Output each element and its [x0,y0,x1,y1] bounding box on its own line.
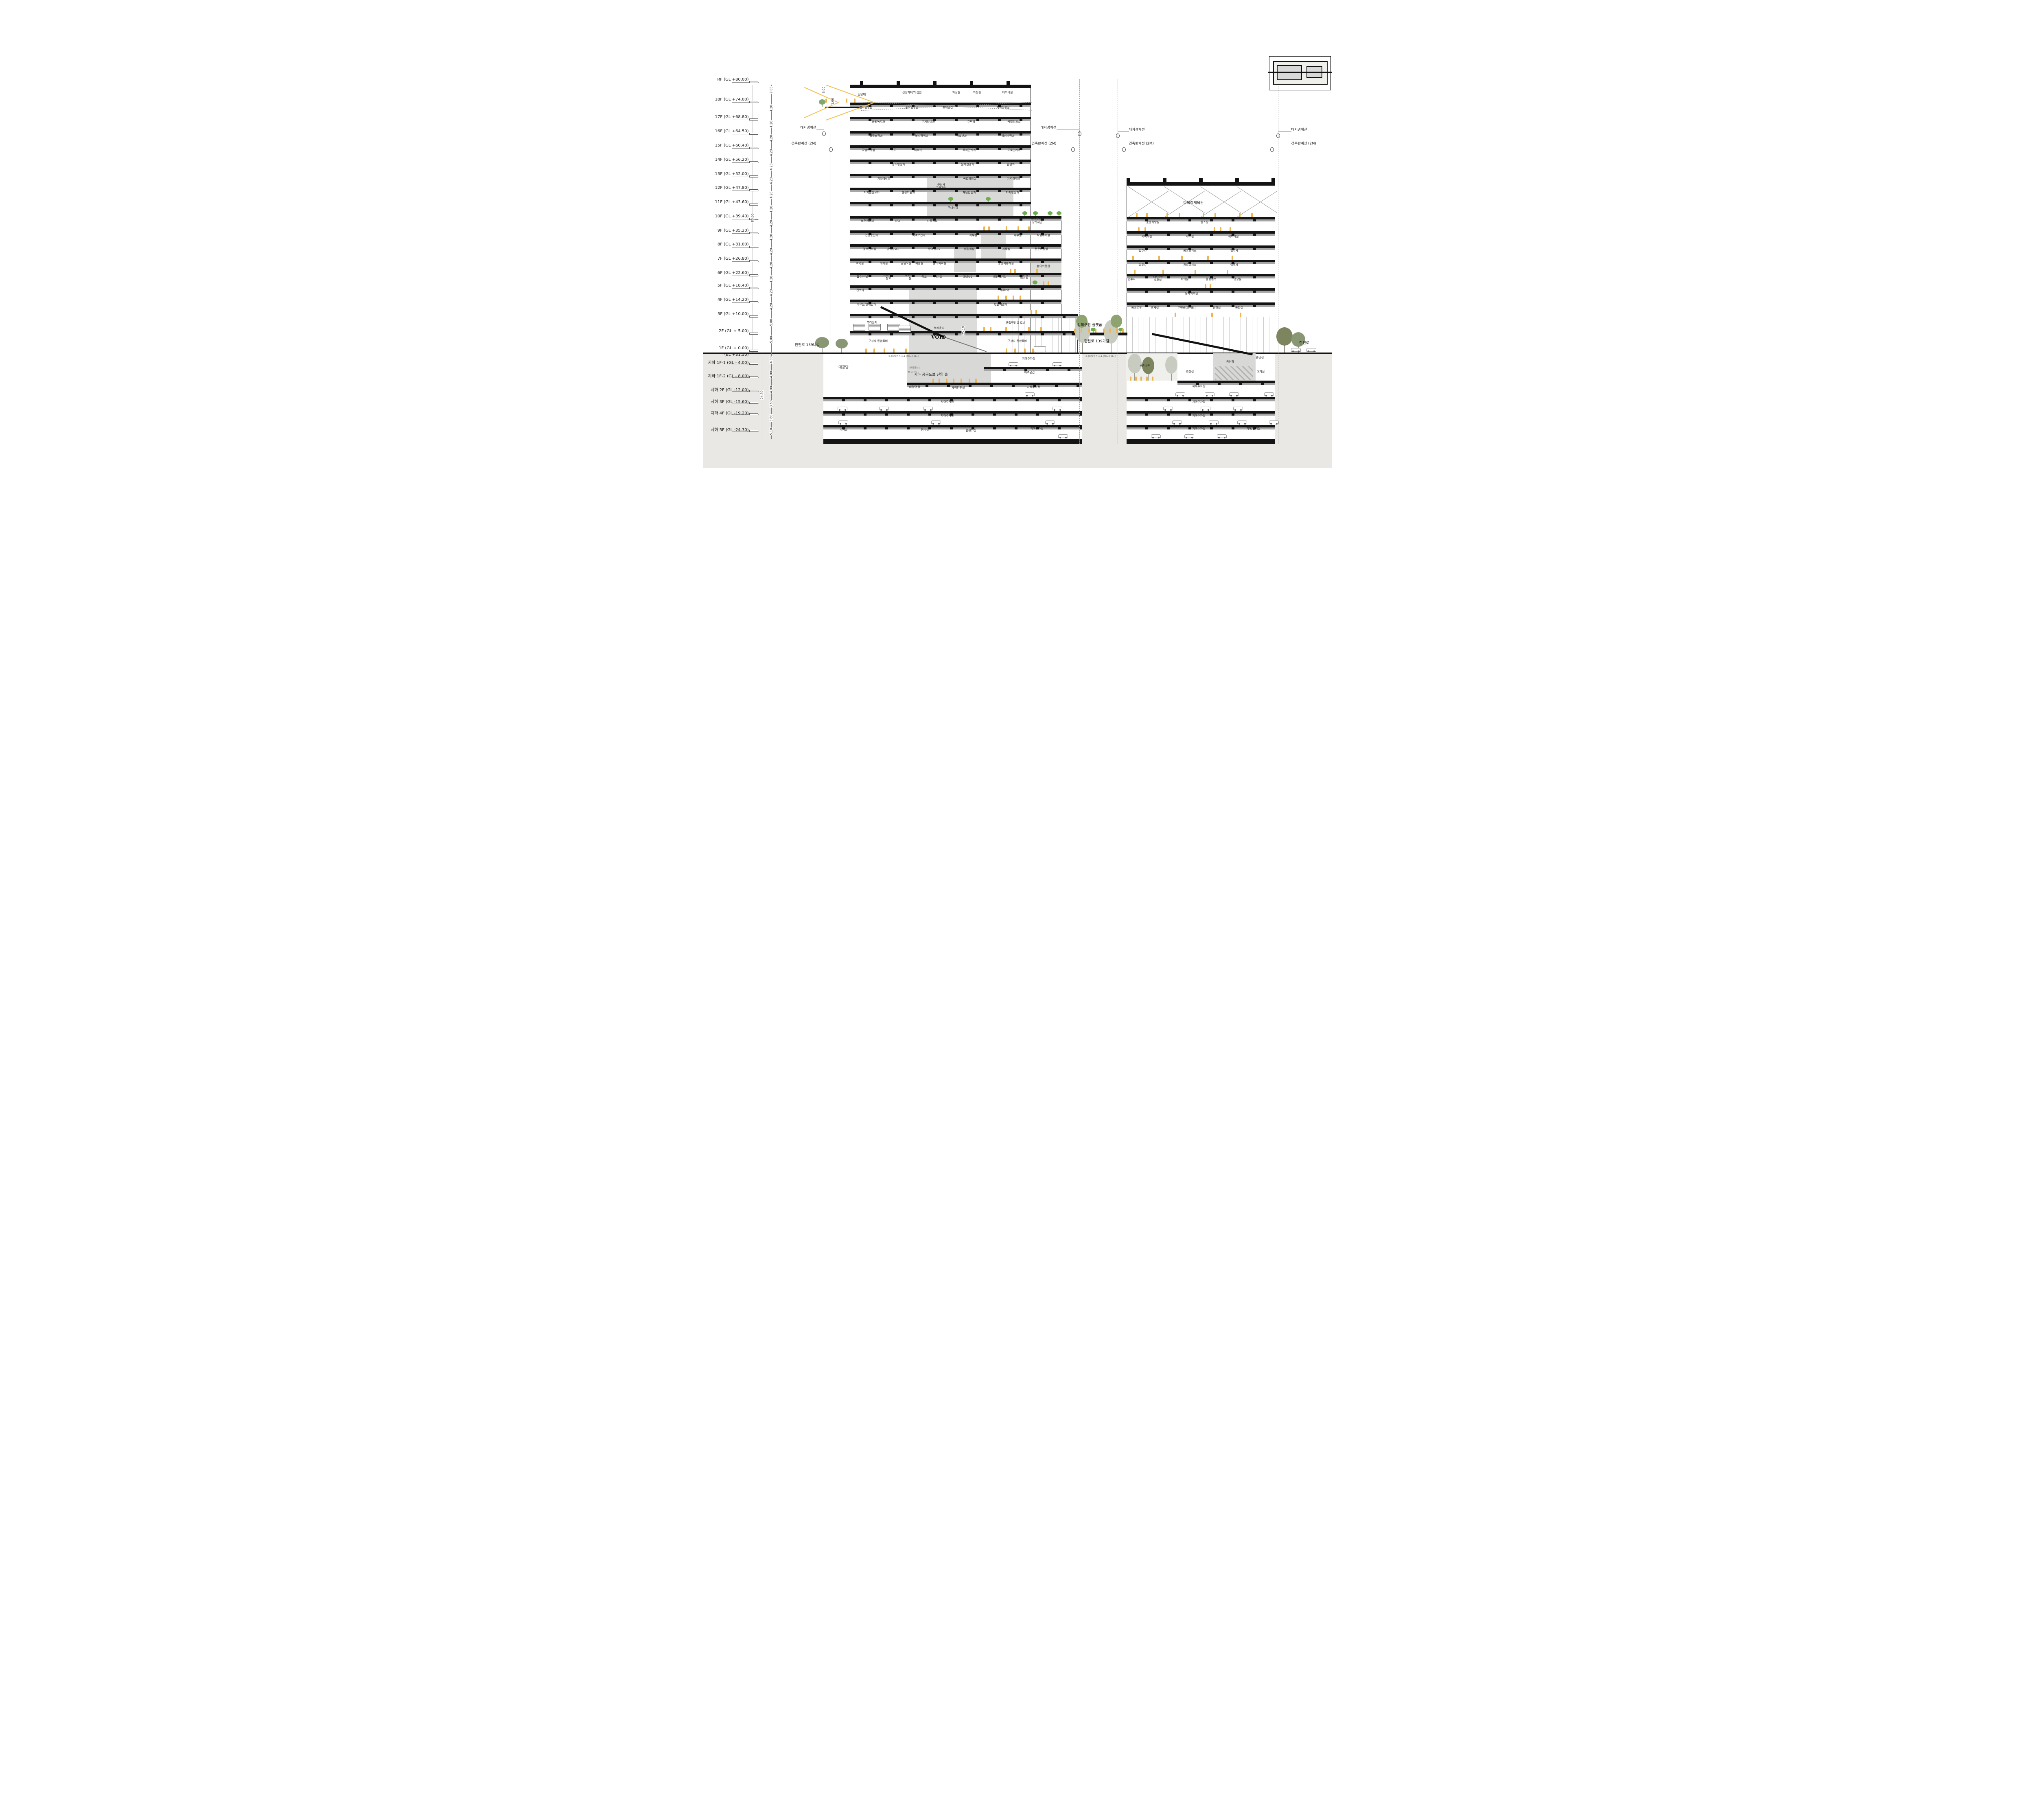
car-icon [1291,348,1301,352]
dim-value: 4.20 [769,289,773,297]
dim-extra-value: 25.10 [961,326,965,335]
car-icon [1205,392,1214,396]
room-label: 예비실2 [963,276,973,279]
tree-icon [1111,315,1122,328]
floor-level-tick [749,260,758,262]
person-figure [1014,348,1016,353]
person-figure [1035,310,1037,314]
sky-garden-shaft [927,175,1013,216]
room-label: 하역공간 [1024,371,1035,375]
room-label: 다목적실 [927,220,938,223]
room-label: 의원대기실 [993,276,1006,279]
dim-total-value: 24.30 [760,390,764,399]
person-figure [884,348,885,353]
bookshelf-icon [899,326,911,332]
car-icon [1151,434,1161,438]
section-drawing: RF (GL +80.00)18F (GL +74.00)17F (GL +68… [703,0,1332,468]
floor-slab [850,216,1061,221]
room-label: 교육실 [856,262,864,265]
boundary-leader [1057,129,1079,129]
room-label: 입주사 [1139,250,1147,253]
truck-icon [1034,346,1046,352]
floor-level-label: RF (GL +80.00) [703,77,749,82]
room-label: VOID [931,335,946,340]
tree-icon [1033,280,1037,284]
car-icon [1269,421,1279,424]
floor-level-tick [749,363,758,365]
building-limit-line [1124,134,1124,362]
floor-level-label: (EL +31.50) [703,353,749,357]
floor-level-label: 6F (GL +22.60) [703,271,749,275]
room-label: 동장실 [1235,307,1243,310]
floor-level-label: 14F (GL +56.20) [703,158,749,162]
car-icon [1264,392,1274,396]
person-figure [1146,377,1148,381]
room-label: 환경과 [1007,163,1015,166]
site-key-section-line [1268,72,1332,73]
basement-slab [907,383,1082,387]
floor-level-label: 4F (GL +14.20) [703,298,749,302]
room-label: 헬스장 [1201,221,1208,224]
floor-level-tick [749,204,758,206]
floor-level-label: 지하 1F-2 (GL - 8.00) [703,372,749,379]
person-figure [1211,313,1213,317]
car-icon [1233,407,1243,410]
person-figure [1251,213,1253,217]
sewer-box-label: 하수BOX 1.5x1.4, (CH=0.91m) [1085,356,1116,358]
room-label: 대강당 [838,366,849,370]
room-label: 대강당 홀 [909,386,921,389]
person-figure [1010,269,1011,273]
dim-value: 4.20 [769,163,773,171]
person-figure [1024,348,1026,353]
car-icon [838,407,847,410]
person-figure [1230,227,1231,231]
floor-level-tick [749,315,758,318]
dim-extra-value: 1.00 [831,98,834,105]
room-label: 지하주차장 [1192,401,1205,404]
room-label: 지하주차장 [1030,427,1043,431]
room-label: 대기실 [880,262,888,265]
floor-level-label: 3F (GL +10.00) [703,312,749,316]
dim-value: 4.20 [769,135,773,142]
room-label: 전기실 [921,429,929,432]
room-label: 주차관리과 [963,149,976,152]
person-figure [1088,329,1090,333]
boundary-leader [1278,131,1291,131]
tree-icon [1165,356,1177,374]
performance-hall-tiers [1215,366,1253,380]
floor-slab [850,285,1061,290]
room-label: 생활보장과 [869,135,882,138]
room-label: 위원장 비서실 [1020,274,1028,280]
person-figure [1210,284,1211,288]
room-label: 공연장 [1226,361,1234,364]
room-label: 치수과 [914,149,922,152]
dim-value: 5.10 [769,428,773,436]
room-label: 지하주차장 [1027,386,1040,389]
room-label: 세미나실 [1228,235,1239,239]
left-foundation-mat [823,439,1082,444]
car-icon [1045,421,1055,424]
room-label: 청소행정과 [892,163,905,166]
boundary-marker-circle [822,131,826,136]
left-tower-roof [850,85,1031,88]
floor-level-tick [749,81,758,83]
person-figure [939,379,940,383]
floor-level-tick [749,118,758,120]
floor-level-tick [749,161,758,163]
dim-value: 4.20 [769,248,773,256]
road-label: 한천로 139가길 [1084,338,1109,344]
person-figure [1031,310,1032,314]
room-label: 돌봄센터 [1206,278,1217,281]
person-figure [1181,256,1183,260]
tree-icon [819,99,825,105]
floor-level-label: 지하 4F (GL -19.20) [703,410,749,416]
room-label: 본의회정원 [1037,265,1050,268]
room-label: 선큰가든 [1140,365,1150,368]
tree-icon [1033,211,1038,215]
floor-level-tick [749,350,758,352]
person-figure [946,379,947,383]
room-label: 접수/수납 [856,276,868,279]
dim-total-value: 80.00 [751,213,754,222]
room-label: 체력단련실 [952,387,965,390]
floor-level-label: 18F (GL +74.00) [703,97,749,102]
room-label: 구청사 통합로비 [1008,340,1027,343]
person-figure [1214,213,1216,217]
dim-value: 4.20 [769,206,773,213]
room-label: EL 23.35 [908,371,917,374]
room-label: 건강증진과 [865,234,878,237]
room-label: 지하주차장 [1192,414,1205,418]
room-label: 운동처방실 [1146,221,1159,224]
person-figure [969,379,970,383]
room-label: 기획예산과 [877,177,890,181]
room-label: 방역창고1 [886,248,899,251]
person-figure [1048,281,1049,285]
person-figure [1043,281,1044,285]
right-foundation-mat [1127,439,1275,444]
floor-slab [850,273,1061,277]
room-label: 휴게실 [1151,307,1159,310]
floor-level-tick [749,147,758,149]
car-icon [1217,434,1227,438]
person-figure [1074,329,1076,333]
room-label: 지하주차장 [1192,385,1205,388]
car-icon [1058,434,1068,438]
room-label: 지하공공도보 [909,367,921,370]
room-label: 도로관리과 [1007,149,1020,152]
room-label: 디지털정보과 [864,191,880,195]
floor-level-tick [749,175,758,177]
room-label: 통합민원실 로비 [1006,322,1025,325]
road-label: 강북구민 플랫폼 [1077,322,1102,327]
floor-level-label: 17F (GL +68.80) [703,115,749,119]
car-icon [1209,421,1219,424]
floor-slab [850,230,1061,235]
limit-marker-circle [1122,147,1126,152]
room-label: 공원녹지과 [872,120,885,124]
room-label: 유관기관 사무실 [1153,276,1163,282]
dim-value: 4.20 [769,191,773,199]
floor-slab [850,145,1031,150]
floor-level-tick [749,287,758,289]
sewer-box-label: 하수BOX 1.5x1.4, (CH=0.91m) [888,356,919,358]
room-label: 자치행정과 [1006,191,1019,195]
floor-level-label: 2F (GL + 5.00) [703,329,749,333]
person-figure [1205,284,1206,288]
room-label: 전망대 [858,93,866,96]
floor-level-tick [749,189,758,191]
site-boundary-label: 대지경계선 [1291,127,1307,132]
room-label: 의무기록창고 [882,274,895,280]
floor-level-tick [749,101,758,103]
person-figure [1135,377,1137,381]
person-figure [1195,270,1196,274]
person-figure [1109,329,1111,333]
room-label: 문화관광과 [961,163,974,166]
room-label: 사무실 [1186,235,1194,239]
floor-level-label: 13F (GL +52.00) [703,172,749,176]
room-label: 다목적체육관 [1184,201,1204,205]
roof-column-stub [897,81,900,85]
floor-level-label: 9F (GL +35.20) [703,228,749,233]
floor-level-tick [749,133,758,135]
person-figure [1152,377,1153,381]
dim-value: 4.00 [769,371,773,379]
site-key-plan [1268,55,1332,91]
bookshelf-icon [869,324,881,331]
room-label: 청소년과 [956,135,967,138]
person-figure [1179,213,1180,217]
floor-level-label: 15F (GL +60.40) [703,143,749,148]
room-label: 화장실 [973,91,981,94]
room-label: 구청사 공중정원 [936,184,947,190]
bookshelf-icon [887,324,899,331]
person-figure [846,99,847,103]
person-figure [1130,377,1131,381]
dim-value: 4.20 [769,234,773,241]
room-label: 국별회의실 [1007,120,1020,124]
floor-slab [1127,302,1275,307]
car-icon [838,421,848,424]
room-label: 지역보건과 [912,234,925,237]
room-label: 물리치료실 [933,262,946,265]
room-label: 방역창고2 [928,248,940,251]
person-figure [1028,226,1030,230]
person-figure [1005,296,1007,300]
floor-slab [1127,288,1275,293]
building-limit-label: 건축한계선 (2M) [1031,141,1056,146]
person-figure [1020,296,1021,300]
car-icon [1163,407,1173,410]
tree-icon [1276,327,1293,346]
car-icon [1172,421,1182,424]
tree-icon [1057,211,1061,215]
person-figure [1040,327,1042,331]
room-label: 입주사 [1128,278,1136,281]
person-figure [1081,329,1082,333]
floor-slab [850,244,1061,249]
person-figure [1146,213,1148,217]
room-label: 구청사 통합로비 [869,340,888,343]
dim-extra-value: 6.00 [822,86,825,94]
room-label: 전문위원실 [1035,248,1048,251]
person-figure [932,379,934,383]
room-label: 골밀도실 [901,262,912,265]
floor-level-label: 12F (GL +47.80) [703,186,749,190]
dim-value: 4.20 [769,220,773,228]
person-figure [1144,227,1146,231]
room-label: 팀장실 [1213,307,1221,310]
room-label: 지하주차장 [941,414,954,418]
room-label: 어르신/장애인과 [857,303,876,307]
observation-deck-slab [825,107,861,108]
room-label: 꿈나무키움 장학재단 [1031,218,1044,224]
road-label: 한천로 139나길 [795,342,820,347]
floor-level-tick [749,430,758,432]
person-figure [1239,213,1241,217]
room-label: 동자치회관 [1185,292,1198,296]
room-label: 공유오피스 [1183,264,1196,267]
dim-value: 3.60 [769,414,773,422]
car-icon [1229,392,1239,396]
floor-slab [850,202,1031,206]
floor-level-tick [749,246,758,248]
room-label: 기획상황실 [996,106,1009,110]
limit-marker-circle [829,147,833,152]
dim-value: 5.00 [769,336,773,344]
person-figure [1240,313,1241,317]
road-label: 한천로 [1299,340,1309,345]
car-icon [931,421,941,424]
stair-atrium [909,286,977,353]
dim-value: 4.20 [769,177,773,185]
roof-column-stub [1199,178,1203,182]
site-boundary-label: 대지경계선 [1040,125,1056,130]
right-lobby-glazing [1127,317,1275,353]
room-label: 국별회의실 [963,177,976,181]
person-figure [1232,256,1233,260]
room-label: 대회의실 [1002,91,1013,94]
person-figure [1166,213,1168,217]
room-label: 사무실 [969,234,977,237]
room-label: 주거정비과 [921,120,934,124]
person-figure [1175,313,1176,317]
site-boundary-label: 대지경계선 [800,125,816,130]
building-limit-label: 건축한계선 (2M) [791,141,816,146]
person-figure [1140,377,1142,381]
car-icon [1009,362,1018,366]
room-label: 복지정책과 [915,135,928,138]
room-label: 조정실 [1186,370,1194,374]
room-label: 공유오피스 [1183,250,1196,253]
person-figure [975,379,977,383]
bookshelf-icon [853,324,865,331]
floor-level-tick [749,390,758,392]
tree-icon [1128,354,1142,373]
room-label: 국별회의실 [862,149,875,152]
room-label: 주민센터(직원) [1177,307,1195,310]
boundary-marker-circle [1116,134,1120,138]
person-figure [1227,270,1228,274]
limit-marker-circle [1270,147,1274,152]
floor-level-label: 지하 1F-1 (GL - 4.00) [703,359,749,365]
room-label: 세미나실 [1142,235,1152,239]
room-label: 행정지원과 [902,191,915,195]
person-figure [983,226,985,230]
room-label: 구내식당 [948,207,958,210]
room-label: 창고 [921,276,927,279]
roof-column-stub [970,81,973,85]
tree-icon [1022,211,1027,215]
room-label: 북라운지 [934,327,945,330]
building-limit-line [1272,134,1272,362]
boundary-marker-circle [1078,131,1081,136]
building-limit-line [831,134,831,362]
room-label: 직원휴게실 [1037,234,1050,237]
floor-slab [1127,260,1275,264]
dim-value: 3.60 [769,400,773,408]
room-label: 감사담당관 [859,106,872,110]
room-label: 준비실 [1256,357,1264,360]
car-icon [923,407,933,410]
roof-column-stub [1007,81,1010,85]
building-limit-label: 건축한계선 (2M) [1291,141,1316,146]
person-figure [1214,227,1215,231]
room-label: 재난안전과 [963,191,976,195]
floor-slab [850,174,1031,178]
person-figure [1138,227,1140,231]
roof-column-stub [1127,178,1130,182]
room-label: 기계/전기실 [1246,427,1260,431]
room-label: 여성가족과 [1001,135,1014,138]
person-figure [893,348,895,353]
room-label: 세무2과 [1000,289,1010,292]
room-label: 홍보담당관 [905,106,918,110]
roof-column-stub [1163,178,1166,182]
room-label: 입주사 [1230,264,1238,267]
dim-value: 7.00 [769,86,773,94]
person-figure [1103,329,1105,333]
room-label: 지역경제과 [1007,177,1020,181]
building-limit-label: 건축한계선 (2M) [1129,141,1154,146]
room-label: 건축과 [856,289,864,292]
person-figure [983,327,985,331]
floor-level-label: 1F (GL + 0.00) [703,346,749,350]
person-figure [1203,213,1204,217]
dim-value: 4.20 [769,276,773,283]
limit-marker-circle [1071,147,1075,152]
dim-value: 4.20 [769,262,773,269]
floor-level-label: 10F (GL +39.40) [703,214,749,219]
person-figure [825,99,827,103]
room-label: 결핵관리실 [863,248,876,251]
floor-level-label: 5F (GL +18.40) [703,283,749,288]
car-icon [1053,407,1062,410]
floor-level-tick [749,333,758,335]
floor-level-tick [749,376,758,378]
person-figure [1006,226,1007,230]
person-figure [1095,329,1096,333]
floor-level-tick [749,274,758,276]
person-figure [1220,227,1221,231]
floor-slab [1127,245,1275,250]
floor-slab [1127,274,1275,278]
room-label: 지하 공공도보 진입 홀 [914,373,948,377]
